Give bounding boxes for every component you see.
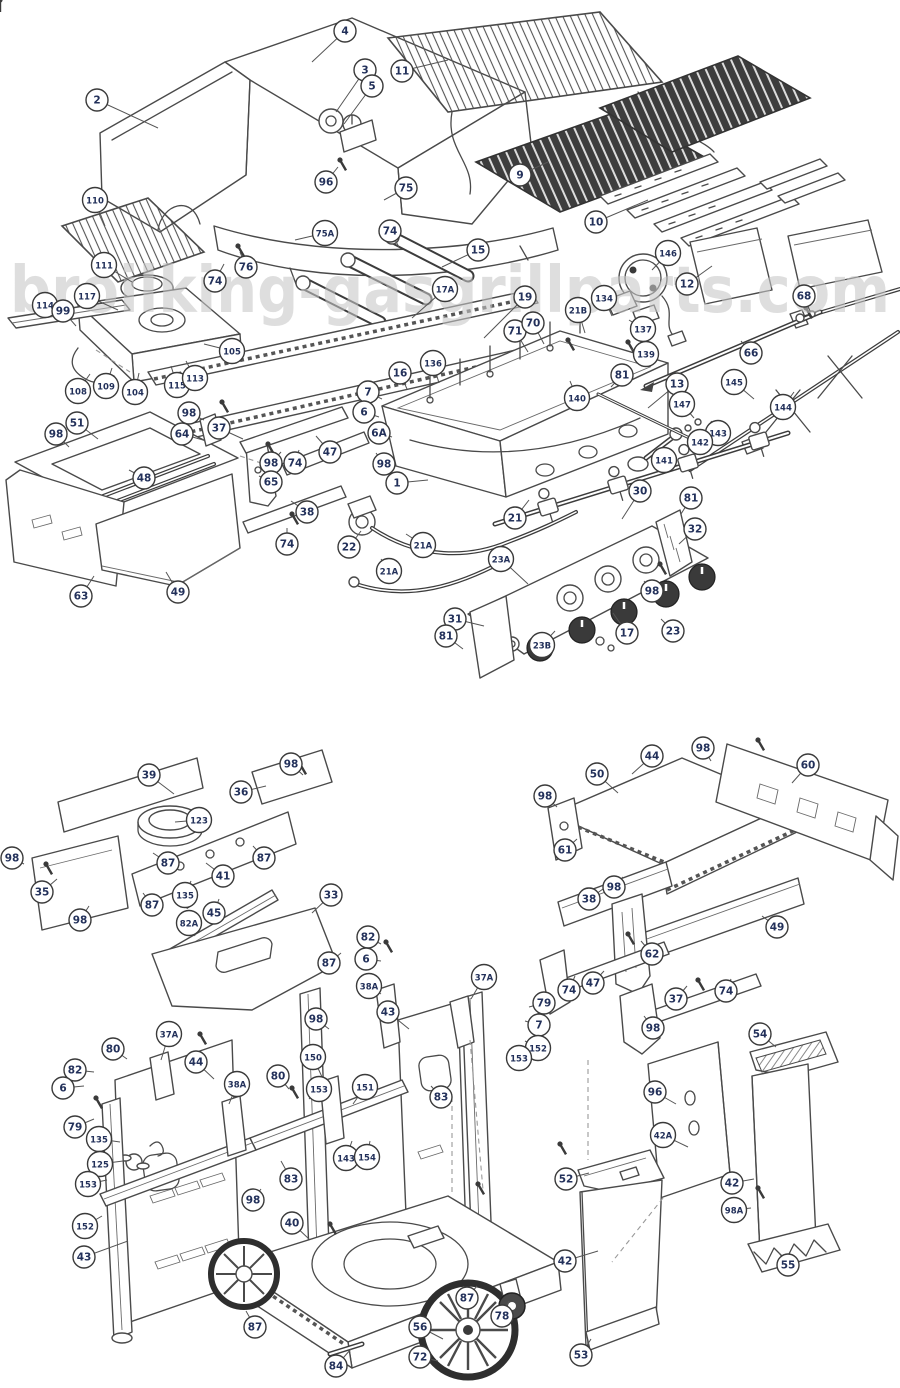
callout-98: 98 [1, 847, 23, 869]
callout-42: 42 [721, 1172, 743, 1194]
svg-text:152: 152 [76, 1222, 94, 1232]
svg-text:141: 141 [655, 456, 673, 466]
callout-135: 135 [173, 883, 198, 908]
callout-48: 48 [133, 467, 155, 489]
callout-19: 19 [514, 286, 536, 308]
svg-text:43: 43 [77, 1251, 92, 1263]
callout-87: 87 [456, 1287, 478, 1309]
svg-text:19: 19 [518, 291, 533, 303]
callout-75: 75 [395, 177, 417, 199]
svg-text:71: 71 [508, 325, 523, 337]
callout-152: 152 [73, 1214, 98, 1239]
callout-98A: 98A [722, 1198, 747, 1223]
svg-text:10: 10 [589, 216, 604, 228]
callout-6: 6 [353, 401, 375, 423]
svg-text:143: 143 [337, 1154, 355, 1164]
callout-87: 87 [253, 847, 275, 869]
svg-text:87: 87 [257, 852, 272, 864]
svg-text:123: 123 [190, 816, 208, 826]
svg-text:98: 98 [264, 457, 279, 469]
svg-text:151: 151 [356, 1083, 374, 1093]
svg-text:11: 11 [395, 65, 410, 77]
callout-98: 98 [69, 909, 91, 931]
svg-text:98: 98 [284, 758, 299, 770]
callout-98: 98 [642, 1017, 664, 1039]
callout-144: 144 [771, 395, 796, 420]
svg-text:74: 74 [208, 275, 223, 287]
callout-23A: 23A [489, 547, 514, 572]
svg-text:110: 110 [86, 196, 104, 206]
callout-147: 147 [670, 392, 695, 417]
svg-text:87: 87 [145, 899, 160, 911]
svg-text:54: 54 [753, 1028, 768, 1040]
svg-text:135: 135 [176, 891, 194, 901]
svg-text:23A: 23A [492, 555, 511, 565]
svg-text:60: 60 [801, 759, 816, 771]
callout-39: 39 [138, 764, 160, 786]
svg-text:74: 74 [288, 457, 303, 469]
callout-47: 47 [319, 441, 341, 463]
callout-117: 117 [75, 284, 100, 309]
callout-44: 44 [185, 1051, 207, 1073]
callout-105: 105 [220, 339, 245, 364]
svg-text:7: 7 [364, 386, 371, 398]
svg-text:105: 105 [223, 347, 241, 357]
callout-140: 140 [565, 386, 590, 411]
svg-text:136: 136 [424, 359, 442, 369]
svg-text:80: 80 [271, 1070, 286, 1082]
svg-text:139: 139 [637, 350, 655, 360]
callout-21: 21 [504, 507, 526, 529]
svg-text:74: 74 [562, 984, 577, 996]
svg-text:137: 137 [634, 325, 652, 335]
svg-text:5: 5 [368, 80, 375, 92]
svg-text:56: 56 [413, 1321, 428, 1333]
callout-21A: 21A [377, 559, 402, 584]
svg-text:47: 47 [586, 977, 601, 989]
svg-text:44: 44 [645, 750, 660, 762]
svg-text:150: 150 [304, 1053, 322, 1063]
svg-text:98A: 98A [725, 1206, 744, 1216]
svg-text:125: 125 [91, 1160, 109, 1170]
callout-74: 74 [284, 452, 306, 474]
callout-43: 43 [377, 1001, 399, 1023]
svg-text:74: 74 [719, 985, 734, 997]
side-panel [752, 1064, 816, 1254]
svg-text:79: 79 [68, 1121, 83, 1133]
callout-81: 81 [680, 487, 702, 509]
svg-text:48: 48 [137, 472, 152, 484]
callout-6: 6 [355, 948, 377, 970]
callout-79: 79 [533, 992, 555, 1014]
callout-98: 98 [534, 785, 556, 807]
callout-54: 54 [749, 1023, 771, 1045]
panel-end-cap [470, 596, 514, 678]
callout-80: 80 [102, 1038, 124, 1060]
svg-text:42: 42 [725, 1177, 740, 1189]
callout-33: 33 [320, 884, 342, 906]
svg-text:98: 98 [538, 790, 553, 802]
callout-74: 74 [558, 979, 580, 1001]
callout-154: 154 [355, 1145, 380, 1170]
cart-rear-braces [32, 750, 337, 1010]
svg-text:82: 82 [68, 1064, 83, 1076]
svg-text:42A: 42A [654, 1131, 673, 1141]
callout-2: 2 [86, 89, 108, 111]
callout-74: 74 [379, 220, 401, 242]
callout-83: 83 [430, 1086, 452, 1108]
callout-6A: 6A [368, 422, 390, 444]
svg-text:62: 62 [645, 948, 660, 960]
callout-81: 81 [435, 625, 457, 647]
callout-38A: 38A [357, 974, 382, 999]
svg-text:80: 80 [106, 1043, 121, 1055]
svg-text:109: 109 [97, 382, 115, 392]
svg-text:81: 81 [684, 492, 699, 504]
callout-38: 38 [578, 888, 600, 910]
svg-text:17: 17 [620, 627, 635, 639]
callout-4: 4 [334, 20, 356, 42]
callout-52: 52 [555, 1168, 577, 1190]
callout-9: 9 [509, 164, 531, 186]
callout-98: 98 [692, 737, 714, 759]
svg-text:98: 98 [696, 742, 711, 754]
right-side-panels [648, 1032, 840, 1272]
svg-text:36: 36 [234, 786, 249, 798]
callout-50: 50 [586, 763, 608, 785]
callout-80: 80 [267, 1065, 289, 1087]
callout-35: 35 [31, 881, 53, 903]
svg-text:38: 38 [300, 506, 315, 518]
callout-96: 96 [315, 171, 337, 193]
svg-text:74: 74 [280, 538, 295, 550]
svg-text:37: 37 [669, 993, 684, 1005]
callout-12: 12 [676, 273, 698, 295]
callout-136: 136 [421, 351, 446, 376]
svg-text:66: 66 [744, 347, 759, 359]
svg-text:21: 21 [508, 512, 523, 524]
svg-text:44: 44 [189, 1056, 204, 1068]
callout-87: 87 [318, 952, 340, 974]
callout-55: 55 [777, 1254, 799, 1276]
callout-98: 98 [242, 1189, 264, 1211]
svg-text:147: 147 [673, 400, 691, 410]
callout-109: 109 [94, 374, 119, 399]
callout-153: 153 [307, 1077, 332, 1102]
callout-60: 60 [797, 754, 819, 776]
svg-text:98: 98 [49, 428, 64, 440]
svg-text:63: 63 [74, 590, 89, 602]
callout-30: 30 [629, 480, 651, 502]
svg-text:84: 84 [329, 1360, 344, 1372]
svg-text:37A: 37A [475, 973, 494, 983]
callout-43: 43 [73, 1246, 95, 1268]
callout-36: 36 [230, 781, 252, 803]
svg-text:72: 72 [413, 1351, 428, 1363]
callout-78: 78 [491, 1305, 513, 1327]
svg-text:32: 32 [688, 523, 703, 535]
svg-text:61: 61 [558, 844, 573, 856]
svg-text:22: 22 [342, 541, 357, 553]
svg-text:83: 83 [434, 1091, 449, 1103]
svg-text:6: 6 [360, 406, 367, 418]
svg-text:111: 111 [95, 261, 113, 271]
callout-72: 72 [409, 1346, 431, 1368]
svg-text:154: 154 [358, 1153, 376, 1163]
svg-text:87: 87 [322, 957, 337, 969]
callout-146: 146 [656, 241, 681, 266]
callout-145: 145 [722, 370, 747, 395]
svg-text:152: 152 [529, 1044, 547, 1054]
svg-text:96: 96 [319, 176, 334, 188]
callout-7: 7 [528, 1014, 550, 1036]
callout-47: 47 [582, 972, 604, 994]
svg-text:134: 134 [595, 294, 613, 304]
svg-text:7: 7 [535, 1019, 542, 1031]
callout-99: 99 [52, 300, 74, 322]
motor-plug [668, 331, 686, 346]
svg-text:6: 6 [362, 953, 369, 965]
svg-text:98: 98 [73, 914, 88, 926]
callout-74: 74 [276, 533, 298, 555]
callout-32: 32 [684, 518, 706, 540]
callout-98: 98 [45, 423, 67, 445]
svg-text:64: 64 [175, 428, 190, 440]
svg-text:43: 43 [381, 1006, 396, 1018]
svg-text:81: 81 [439, 630, 454, 642]
svg-text:21B: 21B [569, 306, 587, 316]
svg-text:13: 13 [670, 378, 685, 390]
svg-text:153: 153 [510, 1054, 528, 1064]
callout-53: 53 [570, 1344, 592, 1366]
callout-98: 98 [280, 753, 302, 775]
svg-text:3: 3 [361, 64, 368, 76]
callout-139: 139 [634, 342, 659, 367]
callout-21B: 21B [566, 298, 591, 323]
svg-text:33: 33 [324, 889, 339, 901]
callout-17: 17 [616, 622, 638, 644]
callout-65: 65 [260, 471, 282, 493]
callout-151: 151 [353, 1075, 378, 1100]
callout-141: 141 [652, 448, 677, 473]
svg-text:79: 79 [537, 997, 552, 1009]
svg-text:2: 2 [93, 94, 100, 106]
callout-64: 64 [171, 423, 193, 445]
lid-logo-medallion [319, 109, 343, 133]
callout-7: 7 [357, 381, 379, 403]
svg-text:98: 98 [5, 852, 20, 864]
callout-68: 68 [793, 285, 815, 307]
svg-text:98: 98 [646, 1022, 661, 1034]
svg-text:98: 98 [377, 458, 392, 470]
svg-text:37A: 37A [160, 1030, 179, 1040]
svg-text:81: 81 [615, 369, 630, 381]
callout-104: 104 [123, 380, 148, 405]
svg-text:98: 98 [182, 407, 197, 419]
callout-63: 63 [70, 585, 92, 607]
callout-82A: 82A [177, 911, 202, 936]
callout-98: 98 [641, 580, 663, 602]
svg-text:38A: 38A [228, 1080, 247, 1090]
callout-15: 15 [467, 239, 489, 261]
callout-62: 62 [641, 943, 663, 965]
svg-text:38A: 38A [360, 982, 379, 992]
callout-76: 76 [235, 256, 257, 278]
callout-42: 42 [554, 1250, 576, 1272]
callout-1: 1 [386, 472, 408, 494]
callout-56: 56 [409, 1316, 431, 1338]
callout-98: 98 [603, 876, 625, 898]
svg-text:98: 98 [607, 881, 622, 893]
cart-base-and-wheels [211, 1196, 561, 1377]
svg-text:37: 37 [212, 422, 227, 434]
callout-45: 45 [203, 902, 225, 924]
callout-44: 44 [641, 745, 663, 767]
svg-text:140: 140 [568, 394, 586, 404]
callout-21A: 21A [411, 533, 436, 558]
svg-text:98: 98 [246, 1194, 261, 1206]
exploded-parts-diagram: broilking-gasgrillparts.com 2435967575A1… [0, 0, 900, 1388]
svg-text:15: 15 [471, 244, 486, 256]
callout-66: 66 [740, 342, 762, 364]
callout-51: 51 [66, 412, 88, 434]
svg-text:12: 12 [680, 278, 695, 290]
callout-11: 11 [391, 60, 413, 82]
callout-79: 79 [64, 1116, 86, 1138]
callout-75A: 75A [313, 221, 338, 246]
svg-text:31: 31 [448, 613, 463, 625]
callout-49: 49 [167, 581, 189, 603]
callout-22: 22 [338, 536, 360, 558]
svg-text:113: 113 [186, 374, 204, 384]
svg-text:96: 96 [648, 1086, 663, 1098]
callout-37: 37 [665, 988, 687, 1010]
svg-text:99: 99 [56, 305, 71, 317]
svg-text:51: 51 [70, 417, 85, 429]
svg-text:9: 9 [516, 169, 523, 181]
svg-text:4: 4 [341, 25, 348, 37]
svg-text:108: 108 [69, 387, 87, 397]
svg-text:87: 87 [161, 857, 176, 869]
callout-23: 23 [662, 620, 684, 642]
svg-text:114: 114 [36, 301, 54, 311]
callout-87: 87 [157, 852, 179, 874]
callout-70: 70 [522, 312, 544, 334]
svg-text:52: 52 [559, 1173, 574, 1185]
svg-text:76: 76 [239, 261, 254, 273]
svg-text:6: 6 [59, 1082, 66, 1094]
svg-text:144: 144 [774, 403, 792, 413]
svg-text:30: 30 [633, 485, 648, 497]
svg-text:42: 42 [558, 1255, 573, 1267]
callout-16: 16 [389, 362, 411, 384]
callout-123: 123 [187, 808, 212, 833]
callout-40: 40 [281, 1212, 303, 1234]
callout-142: 142 [688, 430, 713, 455]
control-panel [468, 510, 715, 678]
callout-98: 98 [305, 1008, 327, 1030]
svg-text:153: 153 [79, 1180, 97, 1190]
svg-text:50: 50 [590, 768, 605, 780]
parts-diagram-page: broilking-gasgrillparts.com 2435967575A1… [0, 0, 900, 1388]
svg-text:38: 38 [582, 893, 597, 905]
callout-6: 6 [52, 1077, 74, 1099]
svg-text:6A: 6A [371, 427, 387, 439]
svg-text:78: 78 [495, 1310, 510, 1322]
svg-text:75A: 75A [316, 229, 335, 239]
callout-84: 84 [325, 1355, 347, 1377]
callout-98: 98 [373, 453, 395, 475]
callout-49: 49 [766, 916, 788, 938]
svg-text:153: 153 [310, 1085, 328, 1095]
callout-74: 74 [204, 270, 226, 292]
svg-text:39: 39 [142, 769, 157, 781]
svg-text:98: 98 [645, 585, 660, 597]
svg-text:65: 65 [264, 476, 279, 488]
svg-text:70: 70 [526, 317, 541, 329]
callout-38: 38 [296, 501, 318, 523]
svg-text:55: 55 [781, 1259, 796, 1271]
svg-text:135: 135 [90, 1135, 108, 1145]
svg-text:75: 75 [399, 182, 414, 194]
callout-111: 111 [92, 253, 117, 278]
svg-text:142: 142 [691, 438, 709, 448]
callout-42A: 42A [651, 1123, 676, 1148]
svg-text:23B: 23B [533, 641, 551, 651]
svg-text:82A: 82A [180, 919, 199, 929]
svg-text:68: 68 [797, 290, 812, 302]
svg-text:82: 82 [361, 931, 376, 943]
callout-23B: 23B [530, 633, 555, 658]
left-wheel [211, 1241, 277, 1307]
svg-text:40: 40 [285, 1217, 300, 1229]
svg-text:98: 98 [309, 1013, 324, 1025]
callout-5: 5 [361, 75, 383, 97]
callout-153: 153 [507, 1046, 532, 1071]
svg-text:47: 47 [323, 446, 338, 458]
callout-108: 108 [66, 379, 91, 404]
callout-135: 135 [87, 1127, 112, 1152]
svg-text:1: 1 [393, 477, 400, 489]
svg-text:21A: 21A [380, 567, 399, 577]
callout-61: 61 [554, 839, 576, 861]
callout-82: 82 [357, 926, 379, 948]
callout-87: 87 [244, 1316, 266, 1338]
callout-37A: 37A [157, 1022, 182, 1047]
callout-153: 153 [76, 1172, 101, 1197]
svg-text:49: 49 [770, 921, 785, 933]
svg-text:87: 87 [460, 1292, 475, 1304]
svg-text:45: 45 [207, 907, 222, 919]
firebox [382, 310, 668, 497]
svg-text:146: 146 [659, 249, 677, 259]
svg-text:74: 74 [383, 225, 398, 237]
svg-text:16: 16 [393, 367, 408, 379]
svg-text:117: 117 [78, 292, 96, 302]
callout-83: 83 [280, 1168, 302, 1190]
svg-text:35: 35 [35, 886, 50, 898]
svg-text:49: 49 [171, 586, 186, 598]
svg-text:53: 53 [574, 1349, 589, 1361]
callout-134: 134 [592, 286, 617, 311]
svg-text:104: 104 [126, 388, 144, 398]
callout-74: 74 [715, 980, 737, 1002]
callout-96: 96 [644, 1081, 666, 1103]
callout-110: 110 [83, 188, 108, 213]
callout-150: 150 [301, 1045, 326, 1070]
callout-10: 10 [585, 211, 607, 233]
svg-text:83: 83 [284, 1173, 299, 1185]
